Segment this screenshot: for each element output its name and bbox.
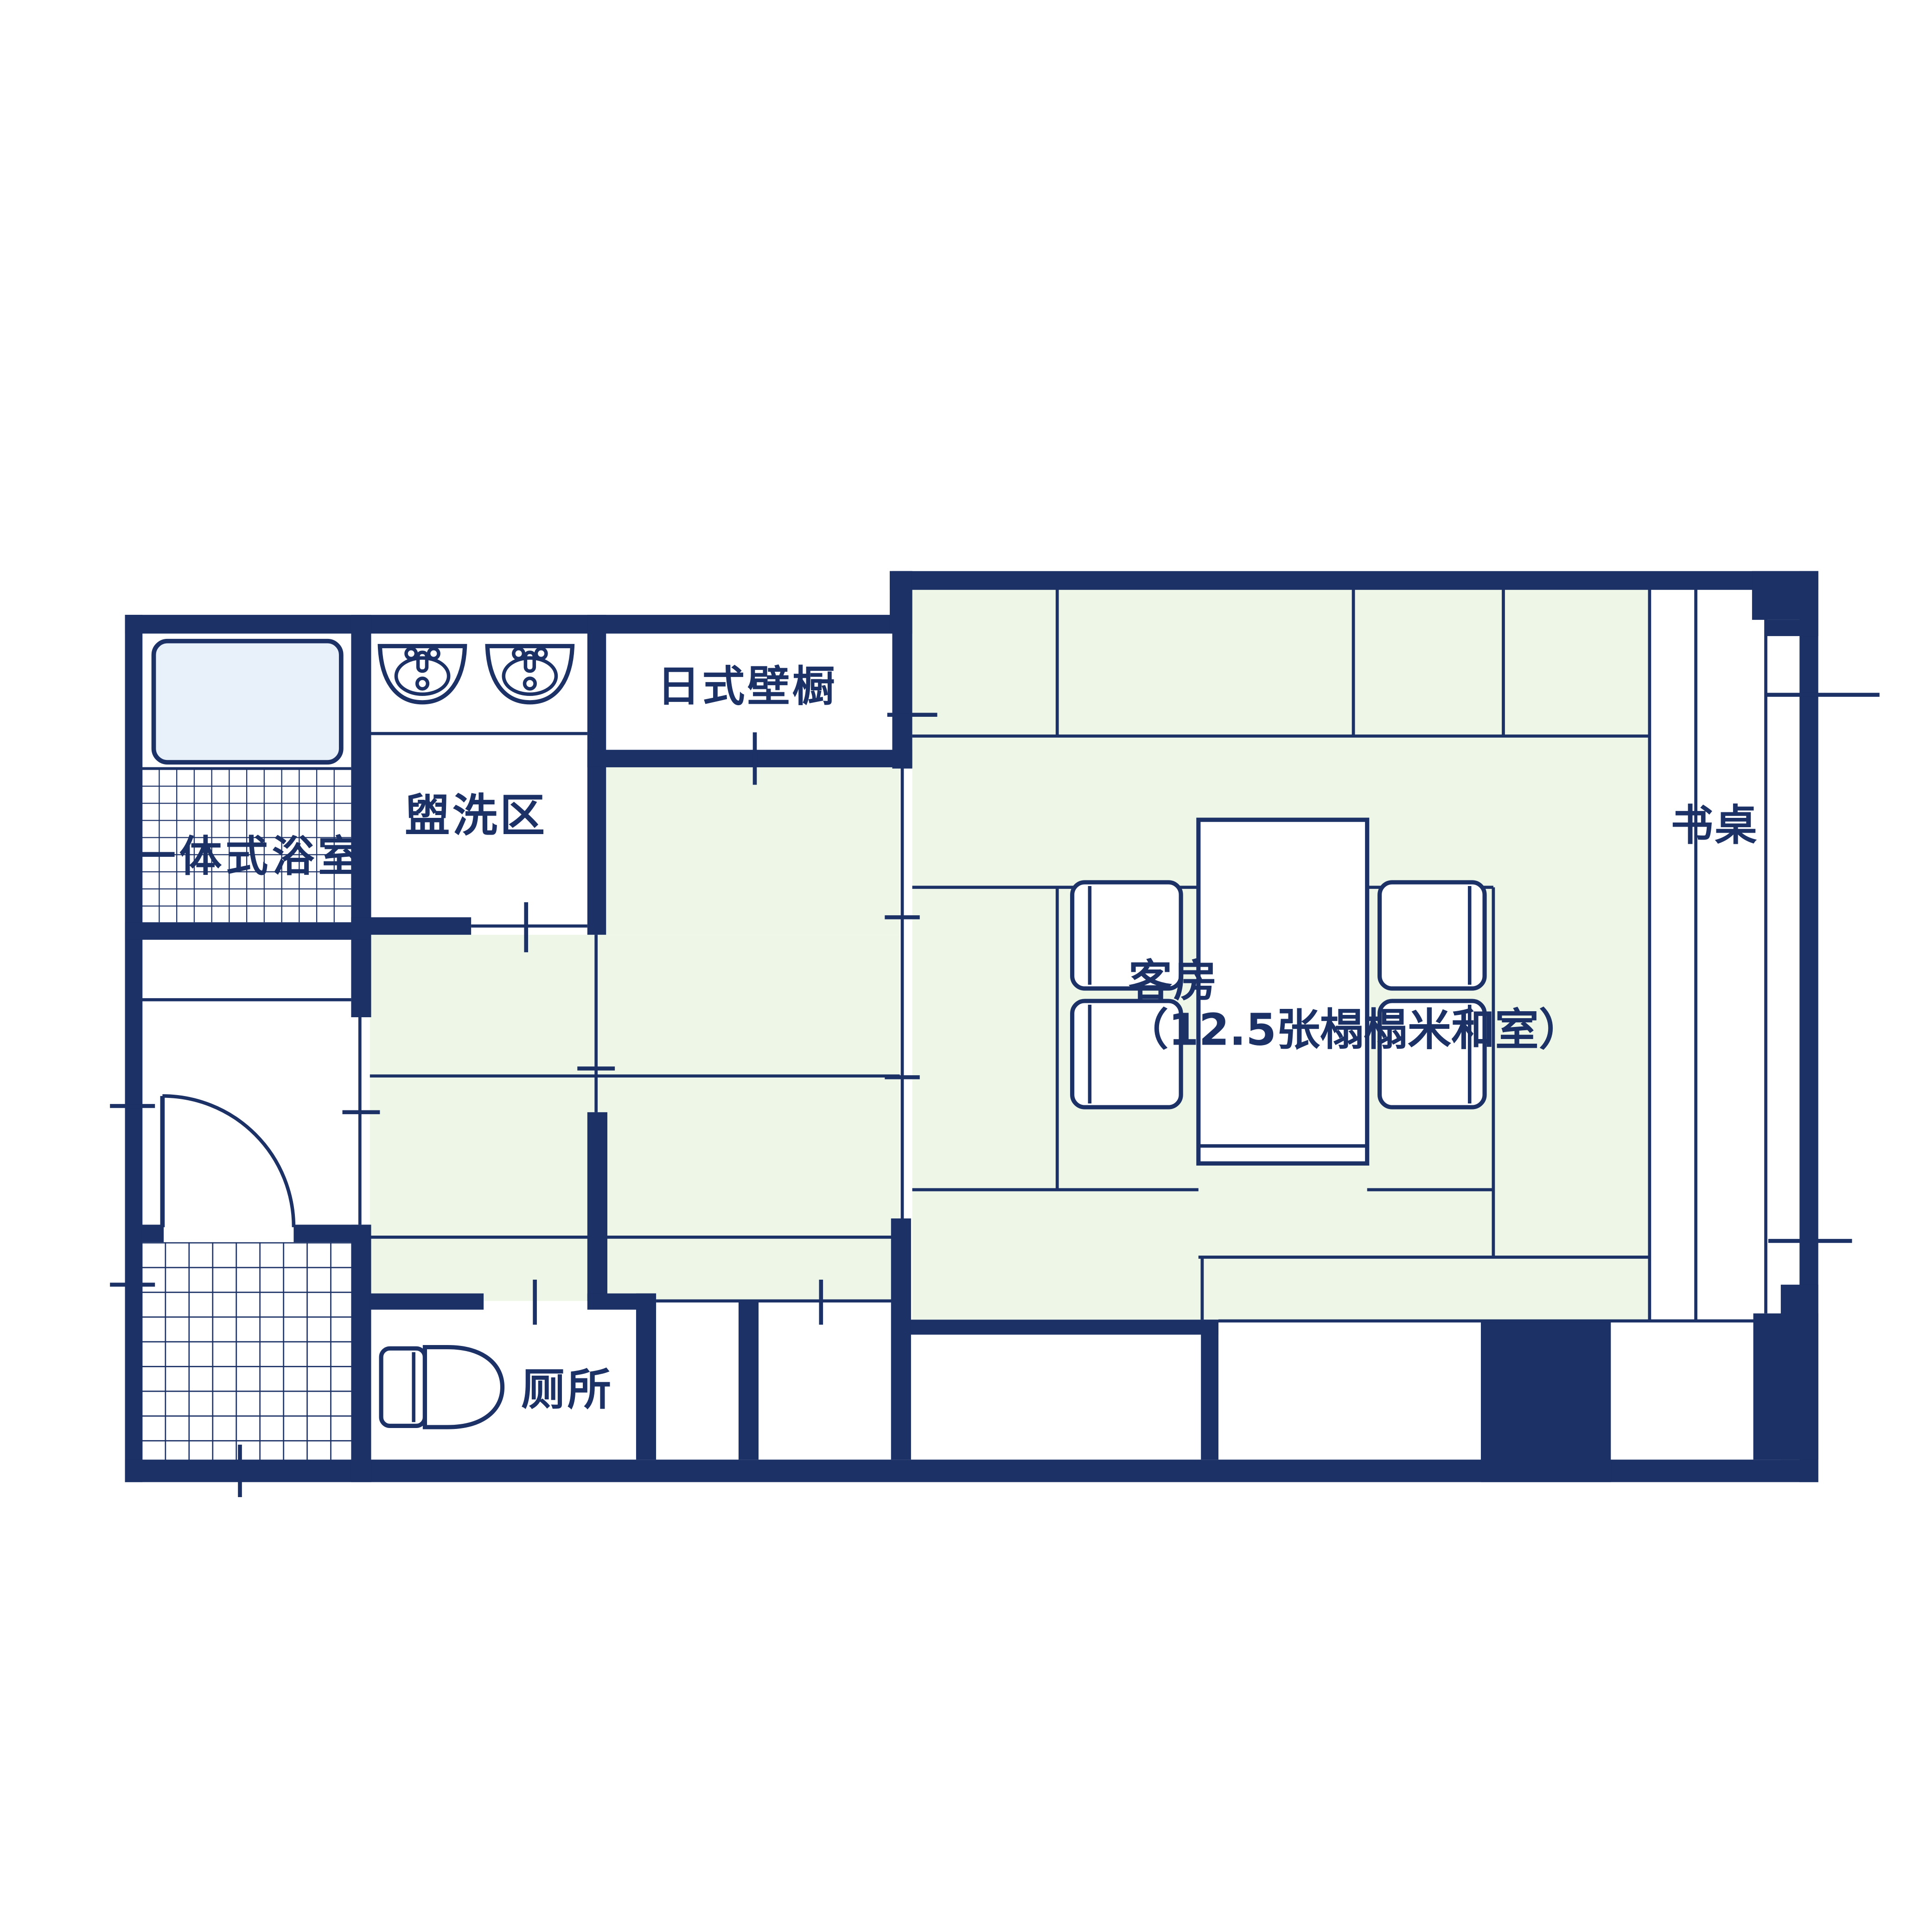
tatami-area-closet-side: [606, 767, 899, 935]
wall-genkan-right: [351, 1224, 371, 1482]
wall-compartment-2: [1201, 1320, 1218, 1460]
wall-entrance-right-stub: [293, 1224, 370, 1242]
wall-corner-bottom-right-b: [1753, 1314, 1818, 1460]
wall-guest-room-bottom: [910, 1320, 1218, 1334]
label-washing-area: 盥洗区: [405, 789, 547, 842]
label-guest-room: 客房: [1129, 956, 1218, 1007]
outer-wall-top-right: [890, 571, 1818, 590]
toilet-icon: [381, 1347, 502, 1428]
toilet-bowl: [425, 1347, 502, 1428]
dining-table: [1199, 820, 1367, 1163]
label-unit-bathroom: 一体式浴室: [133, 832, 364, 881]
wall-solid-block: [1481, 1322, 1611, 1482]
chair: [1380, 882, 1485, 988]
wall-toilet-right: [636, 1294, 656, 1460]
entrance-door-icon: [162, 1096, 293, 1227]
label-toilet: 厕所: [521, 1365, 613, 1416]
wall-bathroom-right: [351, 615, 371, 1017]
washing-area: [370, 646, 587, 733]
label-desk: 书桌: [1671, 800, 1759, 850]
wall-closet-right: [892, 571, 912, 769]
wall-compartment-1: [739, 1301, 759, 1460]
toilet-tank: [381, 1348, 425, 1426]
wall-bathroom-bottom: [125, 922, 370, 940]
entrance: [141, 1096, 354, 1465]
label-japanese-closet: 日式壁橱: [657, 662, 837, 711]
sink-icon: [487, 646, 572, 702]
tatami-area-middle-band: [370, 935, 900, 1301]
outer-wall-left: [125, 615, 143, 1482]
wall-entrance-left-stub: [141, 1224, 164, 1242]
wall-middle-lower: [891, 1218, 911, 1460]
bathtub-icon: [154, 641, 341, 762]
wall-washing-bottom: [351, 917, 471, 935]
label-guest-room-detail: （12.5张榻榻米和室）: [1125, 1004, 1582, 1055]
genkan-tile-floor: [141, 1242, 354, 1465]
wall-corner-top-right: [1752, 571, 1818, 620]
wall-toilet-top-left: [370, 1294, 484, 1310]
door-swing-arc: [162, 1096, 293, 1227]
floor-plan: 一体式浴室 盥洗区 日式壁橱 客房 （12.5张榻榻米和室） 书桌 厕所: [0, 0, 1932, 1932]
wall-corner-top-right-step: [1767, 620, 1818, 636]
wall-closet-bottom: [587, 750, 912, 767]
wall-band-divider: [587, 1112, 607, 1301]
sink-icon: [380, 646, 465, 702]
wall-washing-right: [587, 615, 606, 935]
outer-wall-top-left: [125, 615, 910, 633]
